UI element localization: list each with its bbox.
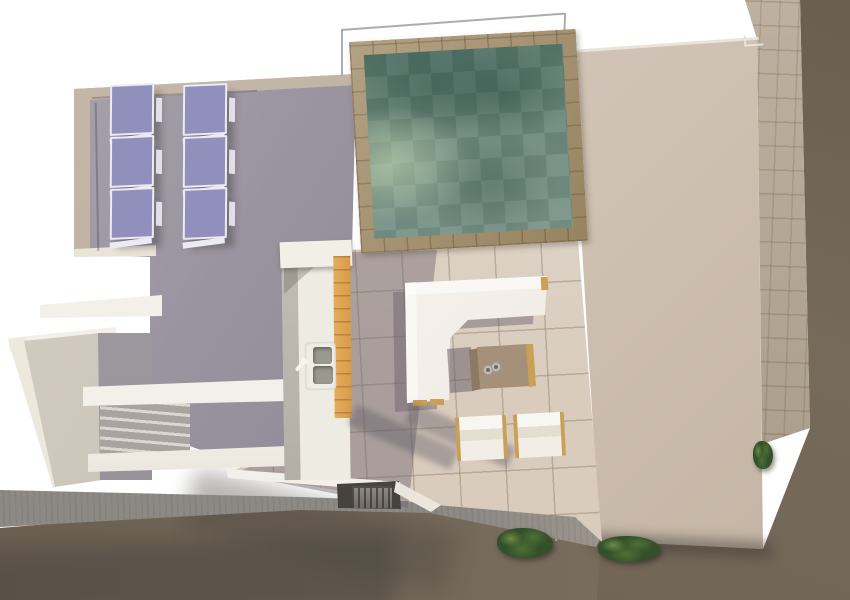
bush <box>753 441 773 469</box>
bush <box>598 536 660 562</box>
rooftop-render <box>0 0 850 600</box>
bush <box>497 528 553 558</box>
bushes <box>0 0 850 600</box>
